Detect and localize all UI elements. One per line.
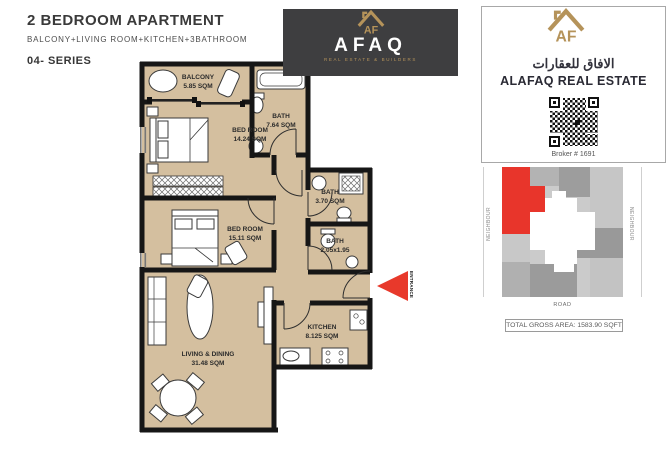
- broker-number: Broker # 1691: [482, 151, 665, 158]
- series-label: 04- SERIES: [27, 55, 247, 67]
- afaq-house-icon: AF: [354, 9, 388, 35]
- brand-panel: الافاق للعقارات ALAFAQ REAL ESTATE Broke…: [481, 6, 666, 163]
- alafaq-english-name: ALAFAQ REAL ESTATE: [482, 74, 665, 88]
- neighbour-left-label: NEIGHBOUR: [486, 207, 492, 241]
- room-label-bath1: BATH 7.64 SQM: [266, 113, 295, 131]
- header: 2 BEDROOM APARTMENT BALCONY+LIVING ROOM+…: [27, 12, 247, 67]
- svg-text:AF: AF: [363, 24, 378, 35]
- alafaq-arabic-name: الافاق للعقارات: [482, 56, 665, 72]
- site-plan: [483, 167, 642, 297]
- room-label-balcony: BALCONY 5.85 SQM: [182, 74, 214, 92]
- afaq-name: AFAQ: [334, 36, 407, 55]
- afaq-badge: AF AFAQ REAL ESTATE & BUILDERS: [283, 9, 458, 76]
- page-subtitle: BALCONY+LIVING ROOM+KITCHEN+3BATHROOM: [27, 35, 247, 44]
- entrance-arrow: [377, 271, 408, 301]
- page-title: 2 BEDROOM APARTMENT: [27, 12, 247, 29]
- room-label-bedroom1: BED ROOM 14.24 SQM: [232, 127, 268, 145]
- room-label-bedroom2: BED ROOM 15.11 SQM: [227, 226, 263, 244]
- room-label-bath2: BATH 3.70 SQM: [315, 189, 344, 207]
- afaq-tagline: REAL ESTATE & BUILDERS: [324, 57, 417, 62]
- road-label: ROAD: [502, 302, 623, 308]
- total-gross-area-box: TOTAL GROSS AREA: 1583.90 SQFT: [505, 319, 623, 332]
- room-label-kitchen: KITCHEN 8.125 SQM: [306, 324, 339, 342]
- entrance-label: ENTRANCE: [409, 271, 414, 298]
- room-label-bath3: BATH 2.05x1.95: [321, 238, 350, 256]
- flyer-canvas: AF: [0, 0, 668, 452]
- room-label-living: LIVING & DINING 31.48 SQM: [182, 351, 235, 369]
- neighbour-right-label: NEIGHBOUR: [628, 207, 634, 241]
